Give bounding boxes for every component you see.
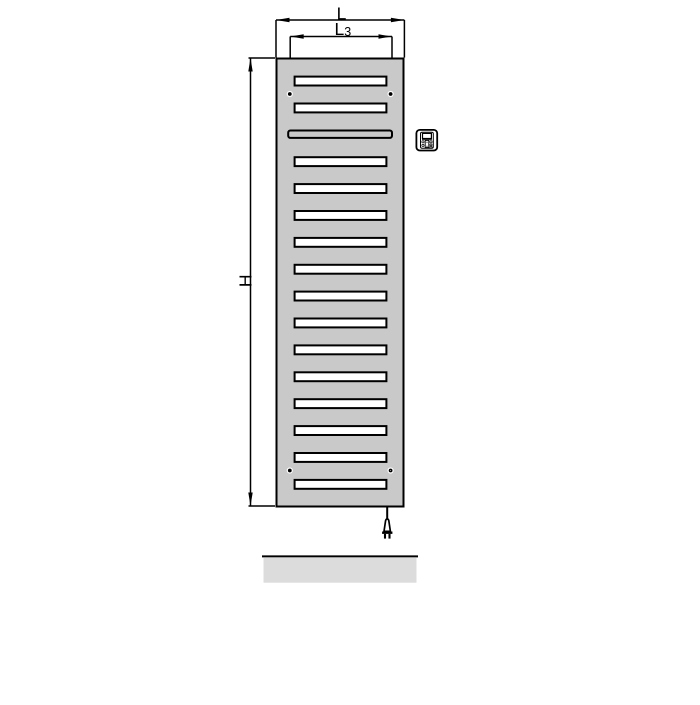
svg-text:H: H (236, 274, 256, 287)
